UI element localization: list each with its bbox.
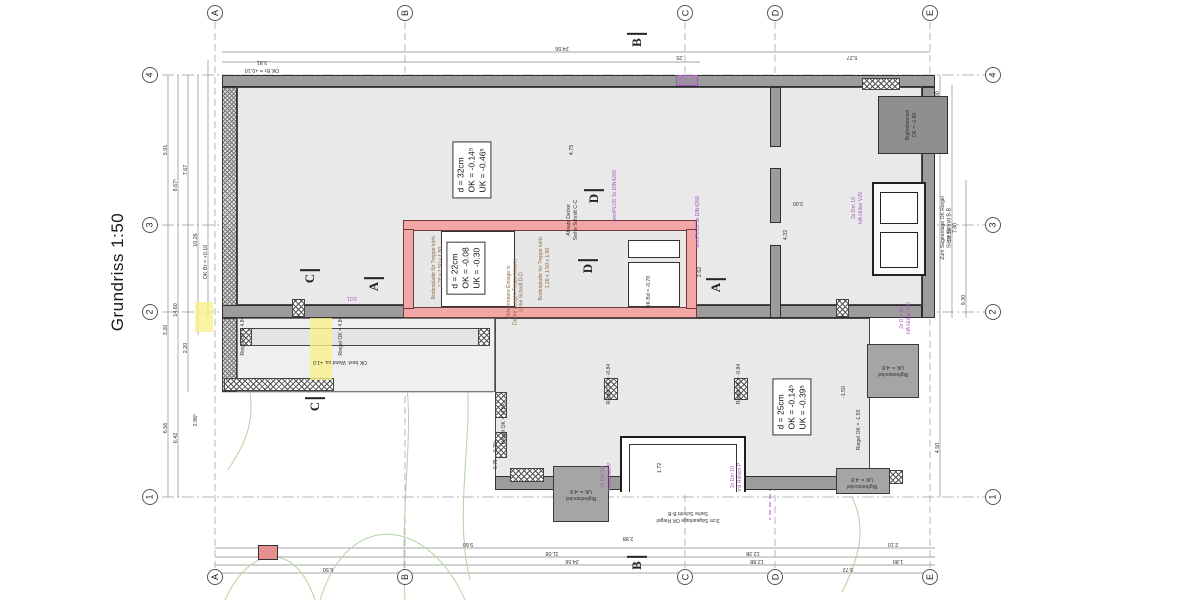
legend-pink-swatch bbox=[258, 545, 278, 560]
shaft-opening-small bbox=[628, 240, 680, 258]
note-label: UK Bd = -0.78 bbox=[647, 276, 653, 308]
dimension-label: .25 bbox=[676, 54, 684, 59]
grid-bubble: 3 bbox=[142, 217, 158, 233]
core-wall-top bbox=[403, 220, 697, 231]
note-label: -1.50 bbox=[842, 386, 848, 398]
note-label: Bigfootsockel UK = -4.8 bbox=[878, 364, 908, 377]
grid-bubble: 1 bbox=[142, 489, 158, 505]
foundation-detail bbox=[620, 436, 746, 492]
annotation-box: d = 32cm OK = -0.14⁵ UK = -0.46⁵ bbox=[452, 142, 491, 199]
dimension-label: 10.26 bbox=[193, 233, 198, 247]
grid-bubble: 1 bbox=[985, 489, 1001, 505]
grid-bubble: 4 bbox=[985, 67, 1001, 83]
note-label: Riegel OK = 4.84 bbox=[339, 317, 345, 356]
section-marker: C bbox=[300, 269, 320, 283]
interior-wall-d-segment bbox=[770, 245, 781, 318]
note-label: Bodenplatte für Treppe kürb. 1.20 x 1.50… bbox=[432, 235, 445, 300]
machine-pit-inner bbox=[880, 232, 918, 268]
grid-bubble: A bbox=[207, 569, 223, 585]
dimension-label: 9.72 bbox=[843, 566, 854, 571]
lift-shaft-opening bbox=[628, 262, 680, 307]
note-label: 2x Dm 10 mit Hülsen P bbox=[731, 463, 744, 492]
dimension-label: 4.75 bbox=[569, 145, 574, 156]
annotation-box: d = 22cm OK = -0.08 UK = -0.30 bbox=[446, 241, 485, 294]
dimension-label: .90 bbox=[935, 91, 940, 99]
dimension-label: 11.08 bbox=[545, 550, 558, 555]
dimension-label: 6.50 bbox=[323, 566, 334, 571]
grid-bubble: 2 bbox=[985, 304, 1001, 320]
note-label: Riegel UK = -0.84 bbox=[607, 364, 613, 404]
section-marker: A bbox=[706, 278, 726, 292]
dimension-label: 14.60 bbox=[173, 303, 178, 317]
dimension-label: 24.56 bbox=[555, 45, 569, 50]
dimension-label: 6.42 bbox=[173, 433, 178, 444]
grid-bubble: E bbox=[922, 5, 938, 21]
dimension-label: 9.30 bbox=[961, 295, 966, 306]
note-label: Riegel OK = -4.84 bbox=[502, 404, 508, 445]
note-label: 2x Dm 10 HA Hülse V20 bbox=[900, 302, 913, 334]
grid-bubble: D bbox=[767, 569, 783, 585]
hall-column bbox=[836, 299, 849, 317]
dimension-label: 3.00 bbox=[793, 200, 804, 205]
grid-bubble: C bbox=[677, 569, 693, 585]
hall-column bbox=[292, 299, 305, 317]
grid-bubble: 3 bbox=[985, 217, 1001, 233]
dimension-label: 2.20 bbox=[183, 343, 188, 354]
note-label: OK best. Wand ca. +1.0 bbox=[313, 358, 367, 364]
note-label: Bigfootsockel UK = -4.8 bbox=[847, 476, 877, 489]
dimension-label: 4.32 bbox=[783, 230, 788, 241]
note-label: 2x Dm 10 HA Hülse V20 bbox=[852, 192, 865, 224]
grid-bubble: A bbox=[207, 5, 223, 21]
dimension-label: 3.20 bbox=[163, 325, 168, 336]
grid-bubble: 4 bbox=[142, 67, 158, 83]
note-label: Bigfootsockel UK = -4.8 bbox=[566, 488, 596, 501]
note-label: Abnehmbare Einlage in Decke (wegen Trepp… bbox=[506, 259, 525, 325]
existing-beam bbox=[240, 328, 490, 346]
note-label: Absatz Decke Siehe Schnitt C-C bbox=[567, 200, 580, 241]
bottom-wall-left-segment bbox=[222, 305, 405, 318]
section-marker: D bbox=[578, 259, 598, 273]
bottom-wall-right-segment bbox=[695, 305, 922, 318]
dimension-label: 5.91 bbox=[163, 145, 168, 156]
section-marker: C bbox=[305, 397, 325, 411]
grid-bubble: D bbox=[767, 5, 783, 21]
dimension-label: OK Br = +0.10 bbox=[245, 67, 280, 72]
left-wall-hatched bbox=[222, 87, 237, 318]
note-label: 2cm Sägeanlage OK Riegel Siehe Schnitt B… bbox=[657, 510, 720, 523]
core-wall-bottom bbox=[403, 307, 697, 318]
dimension-label: 7.67 bbox=[183, 165, 188, 176]
interior-wall-d-segment bbox=[770, 87, 781, 147]
beam-end-column bbox=[478, 328, 490, 346]
note-label: -0.75 bbox=[494, 459, 500, 471]
note-label: 2x Dm 10 mit Hülsen P bbox=[601, 463, 614, 492]
section-marker: B bbox=[627, 33, 647, 47]
dimension-label: 12.88 bbox=[750, 558, 764, 563]
dimension-label: 9.60 bbox=[463, 541, 474, 546]
dimension-label: 2.88 bbox=[623, 535, 634, 540]
top-wall-column bbox=[862, 78, 900, 90]
note-label: 3.01 bbox=[347, 294, 357, 300]
dimension-label: 2.86⁵ bbox=[193, 414, 198, 427]
note-label: Bodenplatte für Treppe kürb. 1.20 x 1.50… bbox=[539, 236, 552, 301]
drawing-title: Grundriss 1:50 bbox=[108, 213, 128, 332]
grid-bubble: 2 bbox=[142, 304, 158, 320]
floor-plan-sheet: Grundriss 1:50 AABBCCDDEE44332 bbox=[0, 0, 1200, 600]
dimension-label: 12.38 bbox=[746, 550, 760, 555]
grid-bubble: B bbox=[397, 569, 413, 585]
dimension-label: 5.27 bbox=[847, 54, 858, 59]
note-label: Riegel UK = -0.84 bbox=[737, 364, 743, 404]
grid-bubble: B bbox=[397, 5, 413, 21]
grid-bubble: C bbox=[677, 5, 693, 21]
top-wall bbox=[222, 75, 935, 87]
dimension-label: 2.10 bbox=[888, 541, 899, 546]
dimension-label: 8.67⁵ bbox=[173, 179, 178, 192]
dimension-label: 4.50 bbox=[935, 443, 940, 454]
dimension-label: 1.80 bbox=[893, 558, 904, 563]
interior-wall-d-segment bbox=[770, 168, 781, 223]
dimension-label: 3.81 bbox=[257, 59, 268, 64]
yellow-highlight bbox=[195, 302, 213, 332]
wing-bottom-column bbox=[510, 468, 544, 482]
note-label: Bigfootsockel OK = -1.80 bbox=[906, 110, 919, 140]
dimension-label: 1.72 bbox=[657, 463, 662, 474]
note-label: Riegel OK = -1.50 bbox=[857, 410, 863, 451]
note-label: -0.30⁵ bbox=[494, 440, 500, 454]
dimension-label: 24.56 bbox=[565, 558, 579, 563]
note-label: amoPLUS 3x DIN4269 bbox=[696, 196, 702, 248]
top-wall-purple-marker bbox=[676, 75, 698, 86]
dimension-label: OK Br = +0.10 bbox=[203, 245, 208, 280]
dimension-label: 2.52 bbox=[697, 267, 702, 278]
section-marker: D bbox=[584, 189, 604, 203]
core-wall-left bbox=[403, 229, 414, 309]
yellow-highlight bbox=[310, 318, 332, 380]
note-label: Zum Sägeanlage OK Riegel Siehe Schnitt B… bbox=[940, 196, 959, 260]
annotation-box: d = 25cm OK = -0.14⁵ UK = -0.39⁵ bbox=[772, 379, 811, 436]
section-marker: A bbox=[364, 277, 384, 291]
section-marker: B bbox=[627, 556, 647, 570]
machine-pit-inner bbox=[880, 192, 918, 224]
dimension-label: 6.56 bbox=[163, 423, 168, 434]
grid-bubble: E bbox=[922, 569, 938, 585]
note-label: Riegel OK = 4.84 bbox=[241, 317, 247, 356]
note-label: amoPLUS 3x DIN4269 bbox=[613, 170, 619, 222]
